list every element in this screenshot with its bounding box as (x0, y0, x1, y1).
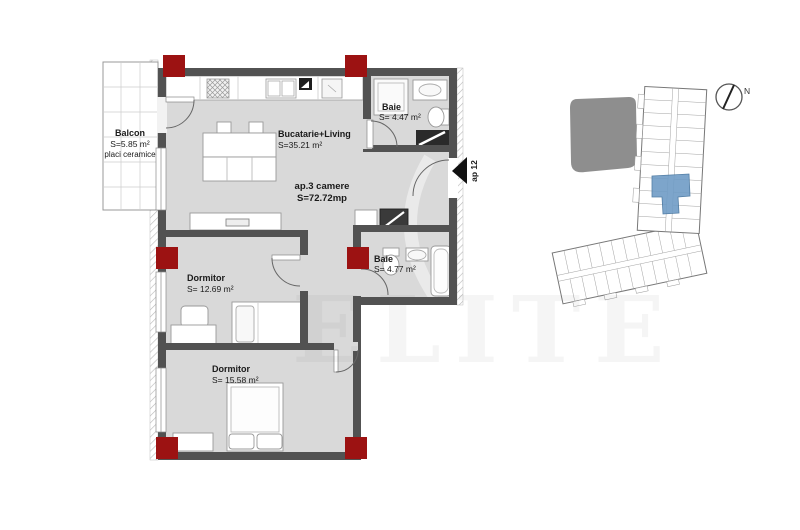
column (156, 247, 178, 269)
stove-icon (207, 79, 229, 98)
balcony-area: S=5.85 m² (110, 139, 150, 149)
windows (156, 148, 166, 432)
window-bedroom1 (156, 272, 166, 332)
bedroom1-furniture (171, 302, 304, 347)
column (347, 247, 369, 269)
bathroom-top-name: Baie (382, 102, 401, 112)
window-bedroom2 (156, 368, 166, 432)
chair (249, 122, 263, 133)
chair (181, 306, 208, 327)
toilet-icon (428, 107, 449, 127)
column (156, 437, 178, 459)
kitchen-counter (166, 76, 363, 100)
apartment-plan: Balcon S=5.85 m² placi ceramice Bucatari… (103, 55, 479, 460)
column (345, 437, 367, 459)
bathroom-top-area: S= 4.47 m² (379, 112, 421, 122)
dining-table (203, 133, 276, 157)
double-bed (227, 383, 283, 451)
balcony-finish: placi ceramice (104, 150, 156, 159)
vent-icon (299, 78, 312, 90)
unit-area: S=72.72mp (297, 193, 347, 204)
living-area: S=35.21 m² (278, 140, 322, 150)
brand-watermark: ELITE (292, 276, 678, 384)
bath-mat-icon (416, 130, 449, 147)
north-compass: N (716, 84, 750, 110)
north-label: N (744, 86, 750, 96)
kitchen-sink-icon (266, 79, 296, 98)
chair (217, 122, 231, 133)
bedroom2-area: S= 15.58 m² (212, 375, 259, 385)
floor-plan-page: Balcon S=5.85 m² placi ceramice Bucatari… (0, 0, 800, 530)
column (345, 55, 367, 77)
dresser (173, 433, 213, 451)
site-plan: N (552, 84, 750, 309)
bathroom-mid-area: S= 4.77 m² (374, 264, 416, 274)
adjacent-building-block (570, 97, 637, 172)
column (163, 55, 185, 77)
bedroom1-area: S= 12.69 m² (187, 284, 234, 294)
balcony-name: Balcon (115, 128, 145, 138)
sofa (203, 157, 276, 181)
bathroom-mid-name: Baie (374, 254, 393, 264)
entrance-ap-label: ap 12 (469, 160, 479, 182)
compass-needle-icon (723, 85, 734, 109)
tv-sideboard (190, 213, 281, 230)
floor-plan-drawing: Balcon S=5.85 m² placi ceramice Bucatari… (0, 0, 800, 530)
unit-name: ap.3 camere (295, 181, 350, 192)
living-furniture (190, 122, 281, 230)
bedroom1-name: Dormitor (187, 273, 225, 283)
sink-icon (406, 248, 428, 261)
bedroom2-name: Dormitor (212, 364, 250, 374)
sink-icon (413, 80, 447, 100)
living-name: Bucatarie+Living (278, 129, 351, 139)
window-living (156, 148, 166, 210)
